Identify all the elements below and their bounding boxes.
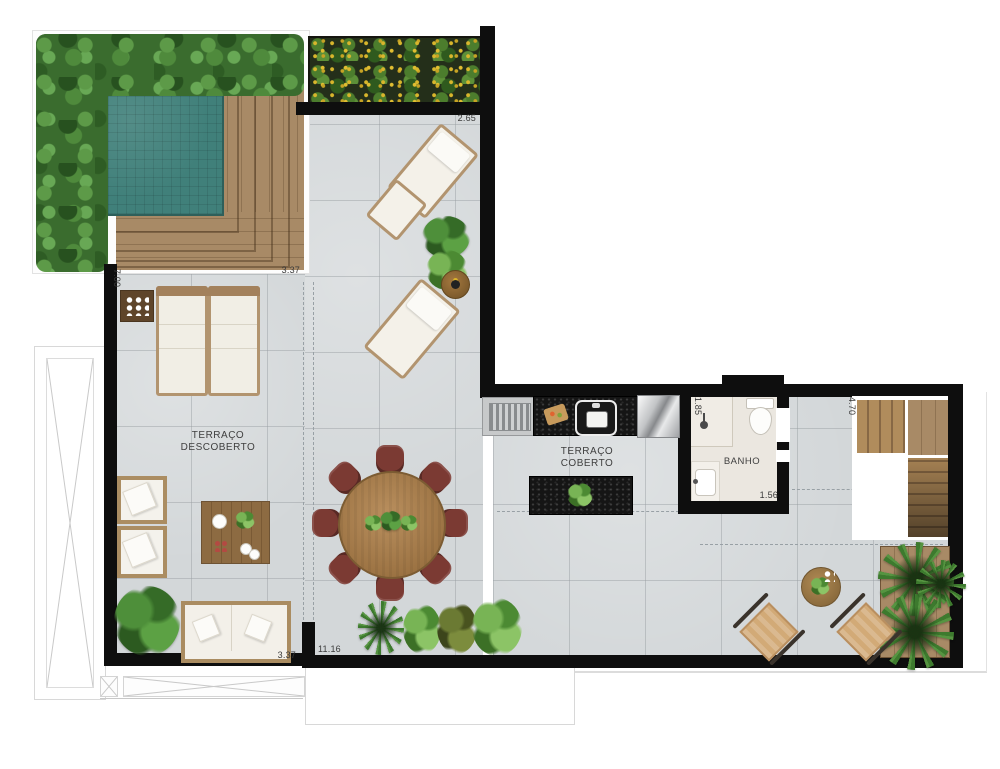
cross-lines-icon [47,359,93,687]
armchair [117,476,167,524]
white-flowers [823,570,835,582]
bathroom-sink [695,469,716,496]
wall [722,375,784,399]
wood-side-table [120,290,154,322]
dimension-garden-side: 7.00 [110,263,122,293]
table-plant [235,511,255,529]
floor-plan: TERRAÇO DESCOBERTO TERRAÇO COBERTO BANHO… [0,0,1000,769]
cross-lines-icon [101,677,117,696]
room-label-line: TERRAÇO [168,430,268,442]
armchair-pillow [122,532,158,569]
room-label-uncovered-terrace: TERRAÇO DESCOBERTO [168,430,268,454]
hedge-left [36,34,108,272]
dimension-bath-door-side: 1.56 [748,490,778,500]
palm-plant [916,560,966,608]
grill-grate-icon [489,403,531,431]
armchair-pillow [122,481,157,515]
round-side-table [441,270,470,299]
grill [482,397,536,436]
slab-edge-line [986,392,987,672]
room-label-line: COBERTO [537,458,637,470]
door-opening [776,450,790,462]
faucet-icon [693,479,698,484]
room-label-line: DESCOBERTO [168,442,268,454]
sink-basin [586,411,608,428]
faucet-icon [592,403,600,408]
dimension-stairs-side: 4.70 [845,391,857,421]
coffee-table [201,501,270,564]
slab-edge-line [100,698,303,699]
cross-lines-icon [124,677,304,696]
large-plant [114,586,180,656]
slab-step-bottom-right [305,666,575,725]
sofa-pillow [192,614,221,643]
skylight-cross-icon [46,358,94,688]
shrub-plant [437,602,477,654]
armchair [117,526,167,578]
pool [88,78,224,216]
shower-head [700,421,708,429]
skylight-cross-long-icon [123,676,305,697]
kitchen-sink [575,400,617,436]
centerpiece-plant [400,515,418,531]
staircase-lower-flight [908,458,948,537]
lounger-cushion-lines [159,324,205,325]
grass-plant [403,604,441,654]
sun-lounger [208,286,260,396]
leafy-plant [472,598,522,656]
projection-line [313,282,315,620]
dining-set [326,459,454,587]
sofa-pillow [244,614,273,643]
plate [212,514,227,529]
sun-lounger [156,286,208,396]
skylight-cross-small-icon [100,676,118,697]
lounger-headrest [156,286,208,296]
dimension-planter-width: 2.65 [436,113,476,123]
refrigerator [637,395,680,438]
lounger-cushion-lines [211,324,257,325]
lounger-headrest [208,286,260,296]
plate [249,549,260,560]
dimension-terrace-width: 11.16 [318,644,362,654]
wall [104,264,117,666]
staircase-landing [908,400,948,455]
stair-shade [908,458,948,537]
table-items [451,280,460,289]
wall [678,501,789,514]
staircase-upper-flight [857,400,905,453]
room-label-bath: BANHO [712,456,772,468]
flower-planter [308,36,482,108]
dimension-bath-width: 1.85 [691,391,703,421]
centerpiece-plant [380,511,402,531]
round-side-table [801,567,841,607]
island-plant [567,483,593,507]
sofa-divider [231,605,232,651]
red-flowers [214,540,228,552]
palm-plant [358,601,404,655]
dimension-deck-width: 3.37 [260,265,300,275]
projection-line [303,282,305,620]
wall [480,26,495,398]
door-opening [776,408,790,442]
dimension-sofa-wall-width: 3.37 [256,650,296,660]
room-label-line: TERRAÇO [537,446,637,458]
room-label-covered-terrace: TERRAÇO COBERTO [537,446,637,470]
slab-edge-line [575,671,987,673]
white-flowers [125,296,149,316]
